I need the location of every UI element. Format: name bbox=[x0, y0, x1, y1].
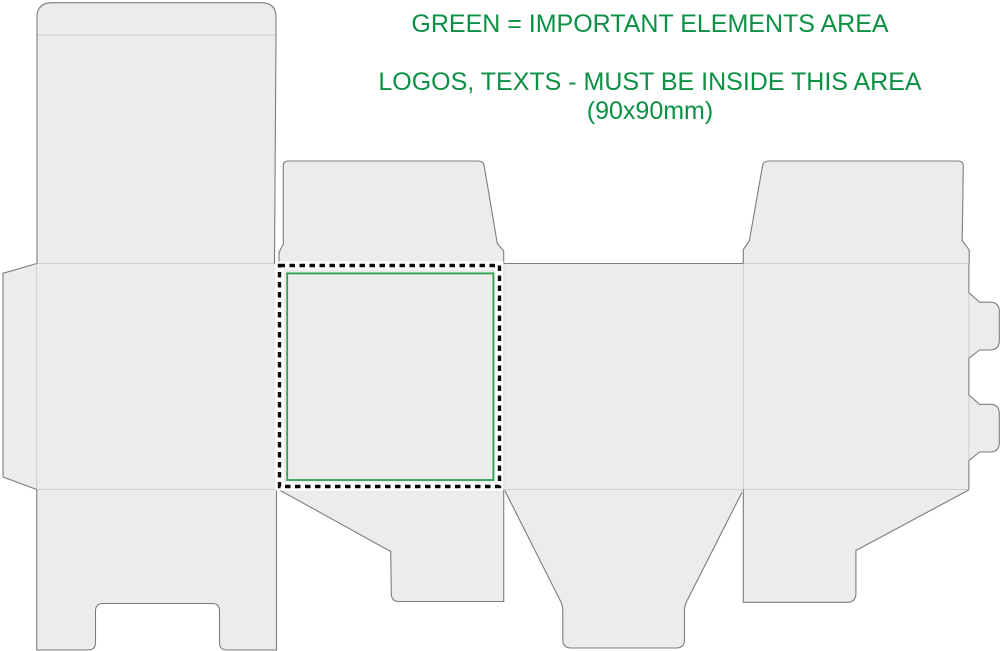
left-glue-tab bbox=[3, 264, 37, 490]
dieline-canvas: GREEN = IMPORTANT ELEMENTS AREA LOGOS, T… bbox=[0, 0, 1000, 651]
bottom-tongue-flap bbox=[505, 490, 742, 649]
tuck-lid bbox=[37, 3, 276, 35]
panel-3 bbox=[504, 264, 744, 490]
top-dust-flap-right bbox=[743, 161, 969, 264]
top-closure-flap bbox=[37, 35, 276, 264]
annotation-line-1: GREEN = IMPORTANT ELEMENTS AREA bbox=[300, 10, 1000, 39]
annotation: GREEN = IMPORTANT ELEMENTS AREA LOGOS, T… bbox=[300, 10, 1000, 126]
bottom-flap-notched bbox=[37, 490, 277, 651]
panel-4 bbox=[743, 264, 969, 490]
annotation-line-3: (90x90mm) bbox=[300, 97, 1000, 126]
annotation-line-2: LOGOS, TEXTS - MUST BE INSIDE THIS AREA bbox=[300, 68, 1000, 97]
panel-2-print-face bbox=[278, 264, 504, 490]
top-dust-flap-left bbox=[279, 161, 504, 264]
panel-1 bbox=[37, 264, 278, 490]
